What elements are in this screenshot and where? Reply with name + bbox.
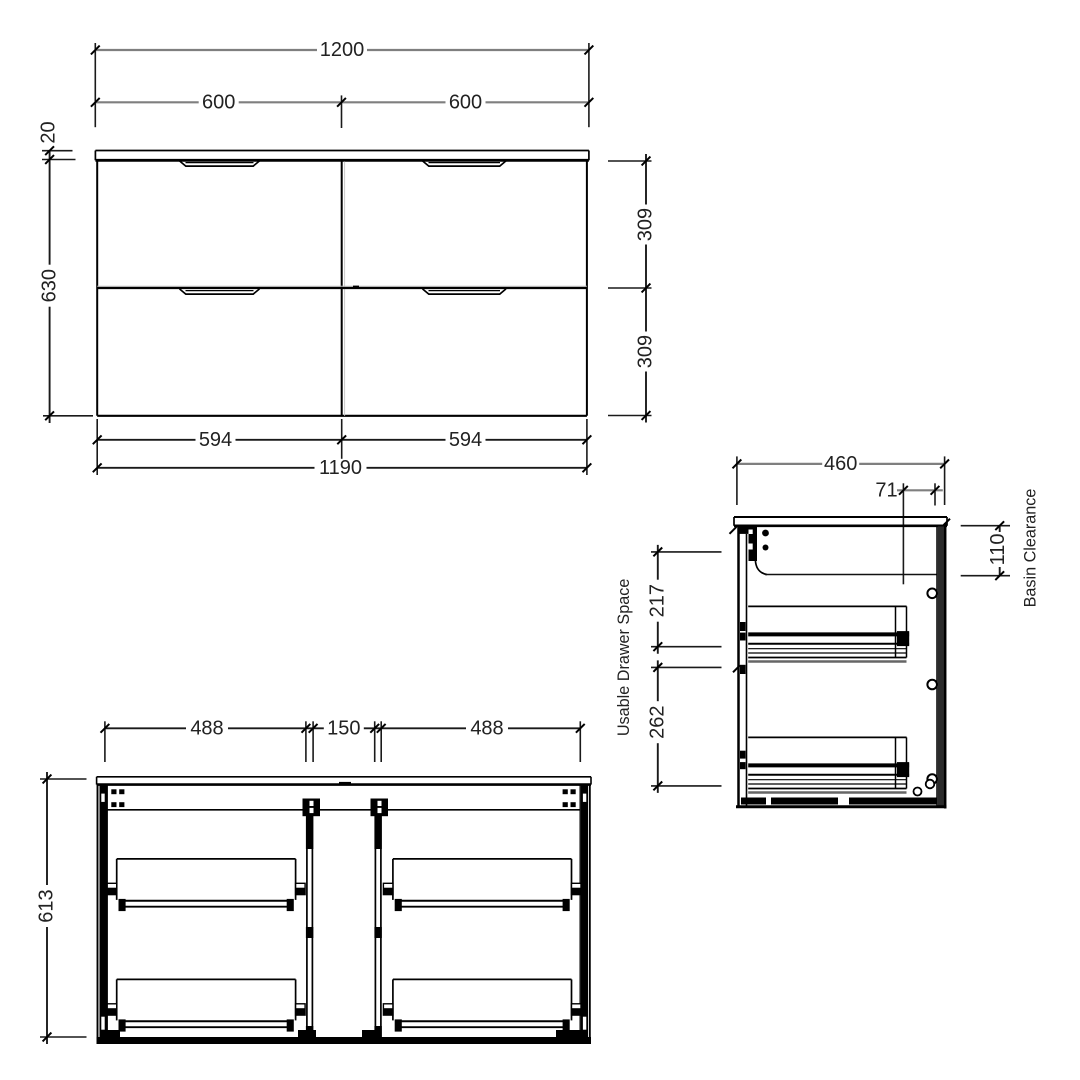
svg-text:630: 630 xyxy=(39,269,61,302)
svg-text:488: 488 xyxy=(470,717,503,739)
svg-text:613: 613 xyxy=(36,889,58,922)
svg-text:600: 600 xyxy=(449,91,482,113)
svg-text:1190: 1190 xyxy=(319,457,362,479)
svg-text:309: 309 xyxy=(635,335,657,368)
svg-text:594: 594 xyxy=(449,429,482,451)
svg-text:Usable Drawer Space: Usable Drawer Space xyxy=(615,579,633,736)
svg-text:262: 262 xyxy=(646,706,668,739)
svg-text:600: 600 xyxy=(202,91,235,113)
svg-text:110: 110 xyxy=(987,533,1009,565)
svg-text:71: 71 xyxy=(875,479,897,501)
svg-text:488: 488 xyxy=(190,717,223,739)
svg-text:1200: 1200 xyxy=(320,39,365,61)
svg-text:460: 460 xyxy=(824,453,857,475)
svg-text:309: 309 xyxy=(635,208,657,241)
svg-text:150: 150 xyxy=(327,717,360,739)
svg-text:217: 217 xyxy=(646,584,668,617)
svg-text:594: 594 xyxy=(199,429,232,451)
svg-text:Basin Clearance: Basin Clearance xyxy=(1022,489,1040,608)
svg-text:20: 20 xyxy=(38,121,60,143)
